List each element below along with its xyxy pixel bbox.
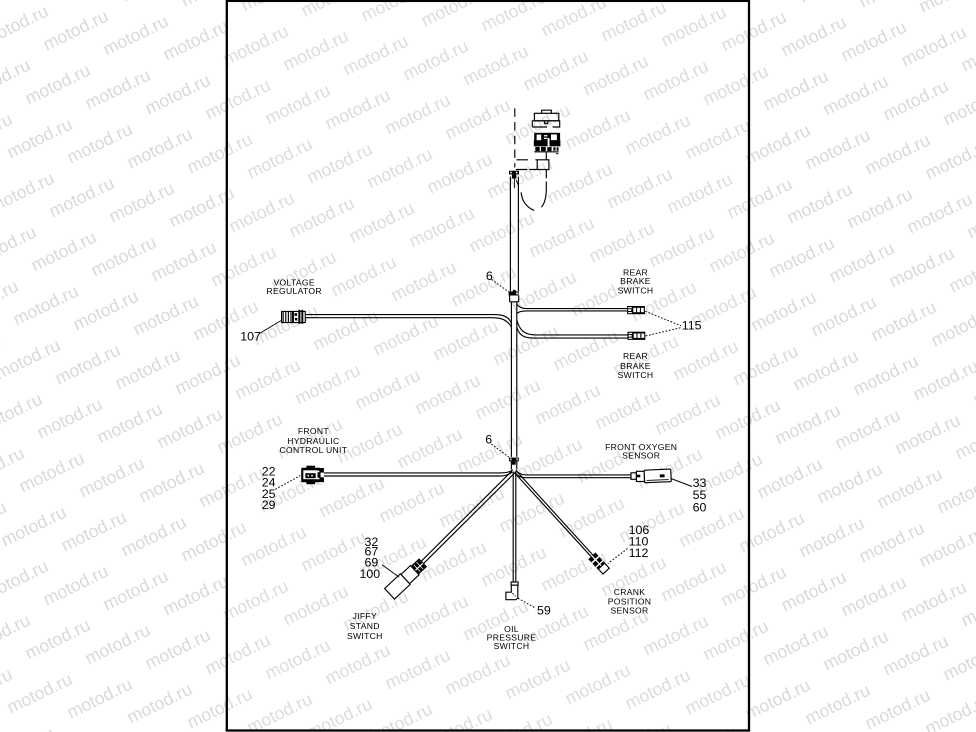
svg-text:59: 59 bbox=[537, 604, 551, 618]
svg-text:29: 29 bbox=[262, 498, 276, 512]
svg-text:FRONT: FRONT bbox=[298, 426, 330, 436]
svg-text:60: 60 bbox=[693, 500, 707, 514]
svg-text:JIFFY: JIFFY bbox=[353, 611, 377, 621]
svg-text:SWITCH: SWITCH bbox=[618, 285, 654, 295]
svg-text:CRANK: CRANK bbox=[614, 587, 646, 597]
svg-text:6: 6 bbox=[486, 269, 493, 283]
svg-text:112: 112 bbox=[629, 546, 649, 560]
svg-text:6: 6 bbox=[485, 432, 492, 446]
svg-text:100: 100 bbox=[360, 567, 381, 581]
svg-text:SWITCH: SWITCH bbox=[347, 631, 383, 641]
svg-text:SWITCH: SWITCH bbox=[618, 370, 654, 380]
svg-text:STAND: STAND bbox=[350, 621, 380, 631]
svg-text:SWITCH: SWITCH bbox=[494, 641, 530, 651]
svg-text:CONTROL UNIT: CONTROL UNIT bbox=[280, 445, 348, 455]
svg-text:SENSOR: SENSOR bbox=[622, 451, 660, 461]
svg-text:SENSOR: SENSOR bbox=[610, 605, 648, 615]
svg-text:REAR: REAR bbox=[623, 351, 648, 361]
svg-text:115: 115 bbox=[682, 319, 702, 333]
svg-text:107: 107 bbox=[240, 330, 261, 344]
svg-text:REGULATOR: REGULATOR bbox=[267, 286, 322, 296]
